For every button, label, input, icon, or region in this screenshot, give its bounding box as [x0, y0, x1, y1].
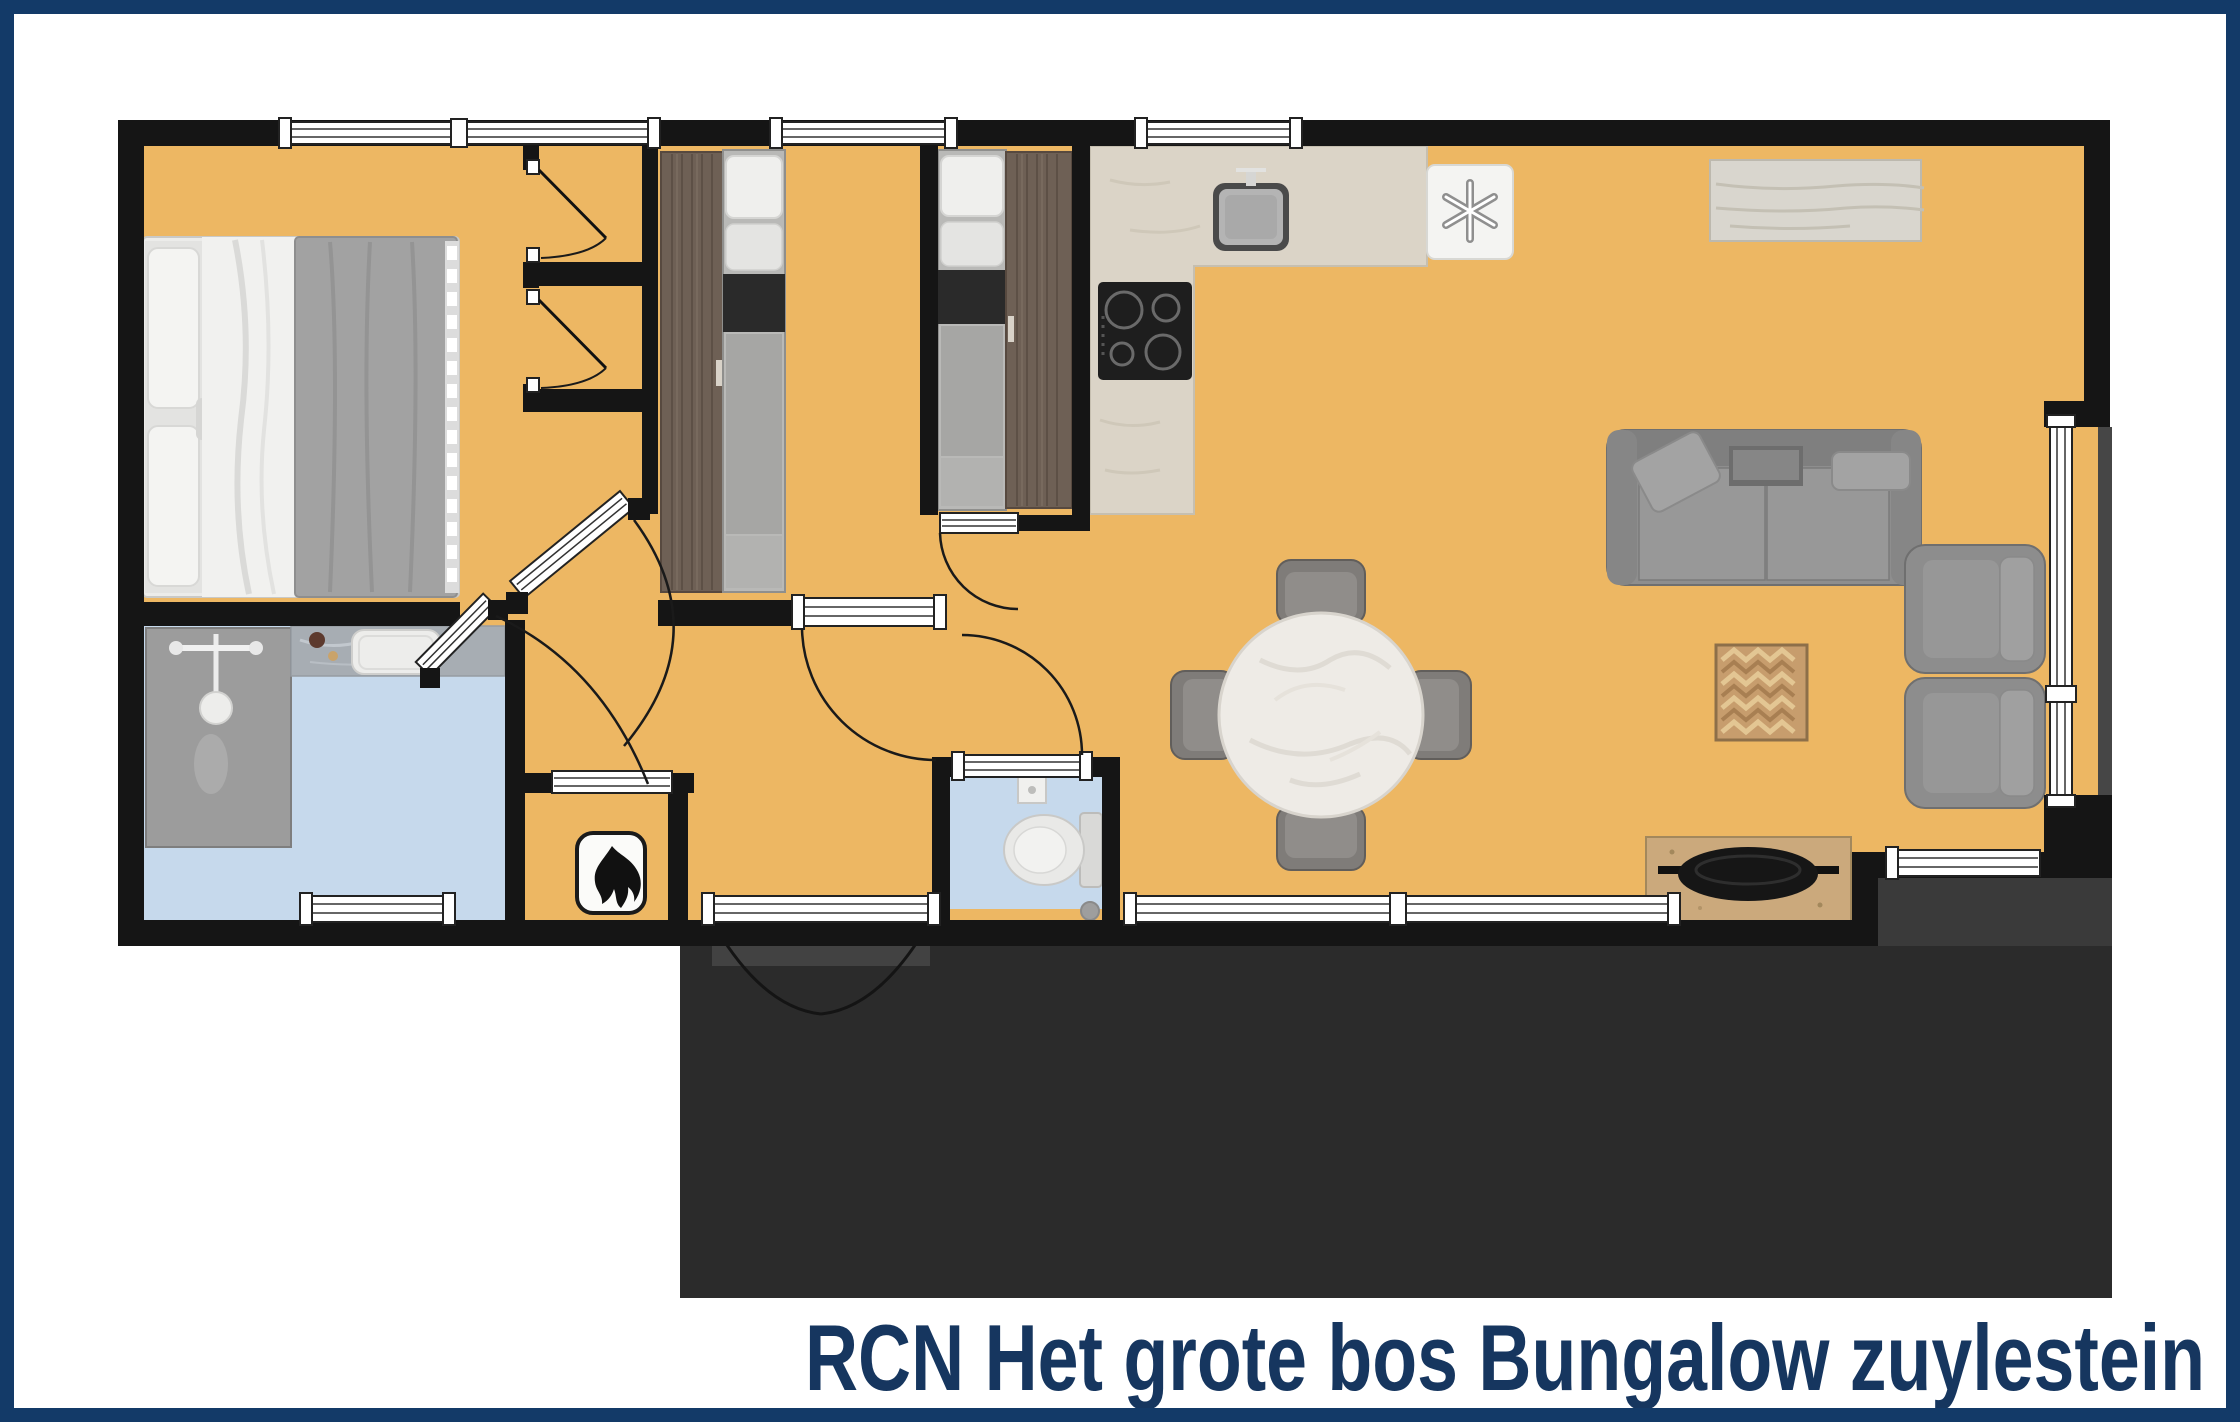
sideboard [1710, 160, 1924, 241]
wardrobe [661, 152, 723, 592]
wall-closet-divider [539, 262, 642, 286]
shower [146, 628, 291, 847]
fridge-freezer [1427, 165, 1513, 259]
single-bed [938, 150, 1006, 510]
wall-master-bottom [144, 602, 460, 626]
wardrobe [1006, 152, 1072, 508]
window [279, 118, 660, 148]
cooktop [1098, 282, 1192, 380]
window [1124, 893, 1680, 925]
toiletry-item [328, 651, 338, 661]
window [300, 893, 455, 925]
pillow [726, 156, 782, 218]
throw-pillow [1832, 452, 1910, 490]
double-bed [143, 237, 459, 597]
wall-closet [523, 262, 539, 288]
wall-boiler-right [668, 773, 688, 920]
soap-dish [309, 632, 325, 648]
window [1135, 118, 1302, 148]
round-dining-table [1219, 613, 1423, 817]
shower-knob [169, 641, 183, 655]
window [2046, 415, 2076, 807]
wall-bedroom-divider [920, 146, 938, 515]
wall-bedroom3-bottom [1018, 515, 1090, 531]
wardrobe-handle [1008, 316, 1014, 342]
window [770, 118, 957, 148]
wall-boiler-top [505, 773, 552, 793]
side-table [1716, 645, 1807, 740]
entrance-door [702, 893, 940, 925]
armchair [1905, 678, 2045, 808]
door-jamb [420, 668, 440, 688]
armchair [1905, 545, 2045, 673]
terrace-deck [680, 946, 2112, 1298]
sofa [1607, 429, 1921, 585]
wall-kitchen [1072, 146, 1090, 515]
wall-toilet-right [1102, 757, 1120, 922]
interior-window [552, 771, 672, 793]
wall-exterior-left [118, 120, 144, 946]
wall-bedroom2-bottom [658, 600, 802, 626]
pillow [726, 224, 782, 270]
wall-exterior-right [2084, 120, 2110, 413]
wall-closet-bottom [523, 389, 658, 412]
single-bed [723, 150, 785, 592]
bed-sheet [202, 237, 300, 597]
wardrobe-handle [716, 360, 722, 386]
central-heating-boiler [577, 833, 645, 913]
wall-exterior-bottom [118, 920, 1878, 946]
wall-bathroom-right [505, 620, 525, 922]
window [1886, 847, 2040, 879]
floor-drain [1081, 902, 1099, 920]
shower-knob [249, 641, 263, 655]
terrace-upper-zone [1876, 878, 2112, 946]
shower-head-icon [200, 692, 232, 724]
wall-closet-right [642, 146, 658, 514]
pillow [941, 156, 1003, 216]
plan-title: RCN Het grote bos Bungalow zuylestein [805, 1305, 2205, 1408]
pillow [941, 222, 1003, 266]
duvet [295, 237, 457, 597]
page-frame: RCN Het grote bos Bungalow zuylestein [0, 0, 2240, 1422]
door-jamb [506, 592, 528, 614]
pillow [148, 426, 199, 586]
floor-plan-canvas: RCN Het grote bos Bungalow zuylestein [14, 14, 2226, 1408]
shower-drain-area [194, 734, 228, 794]
door-jamb [628, 498, 650, 520]
pillow [148, 248, 199, 408]
